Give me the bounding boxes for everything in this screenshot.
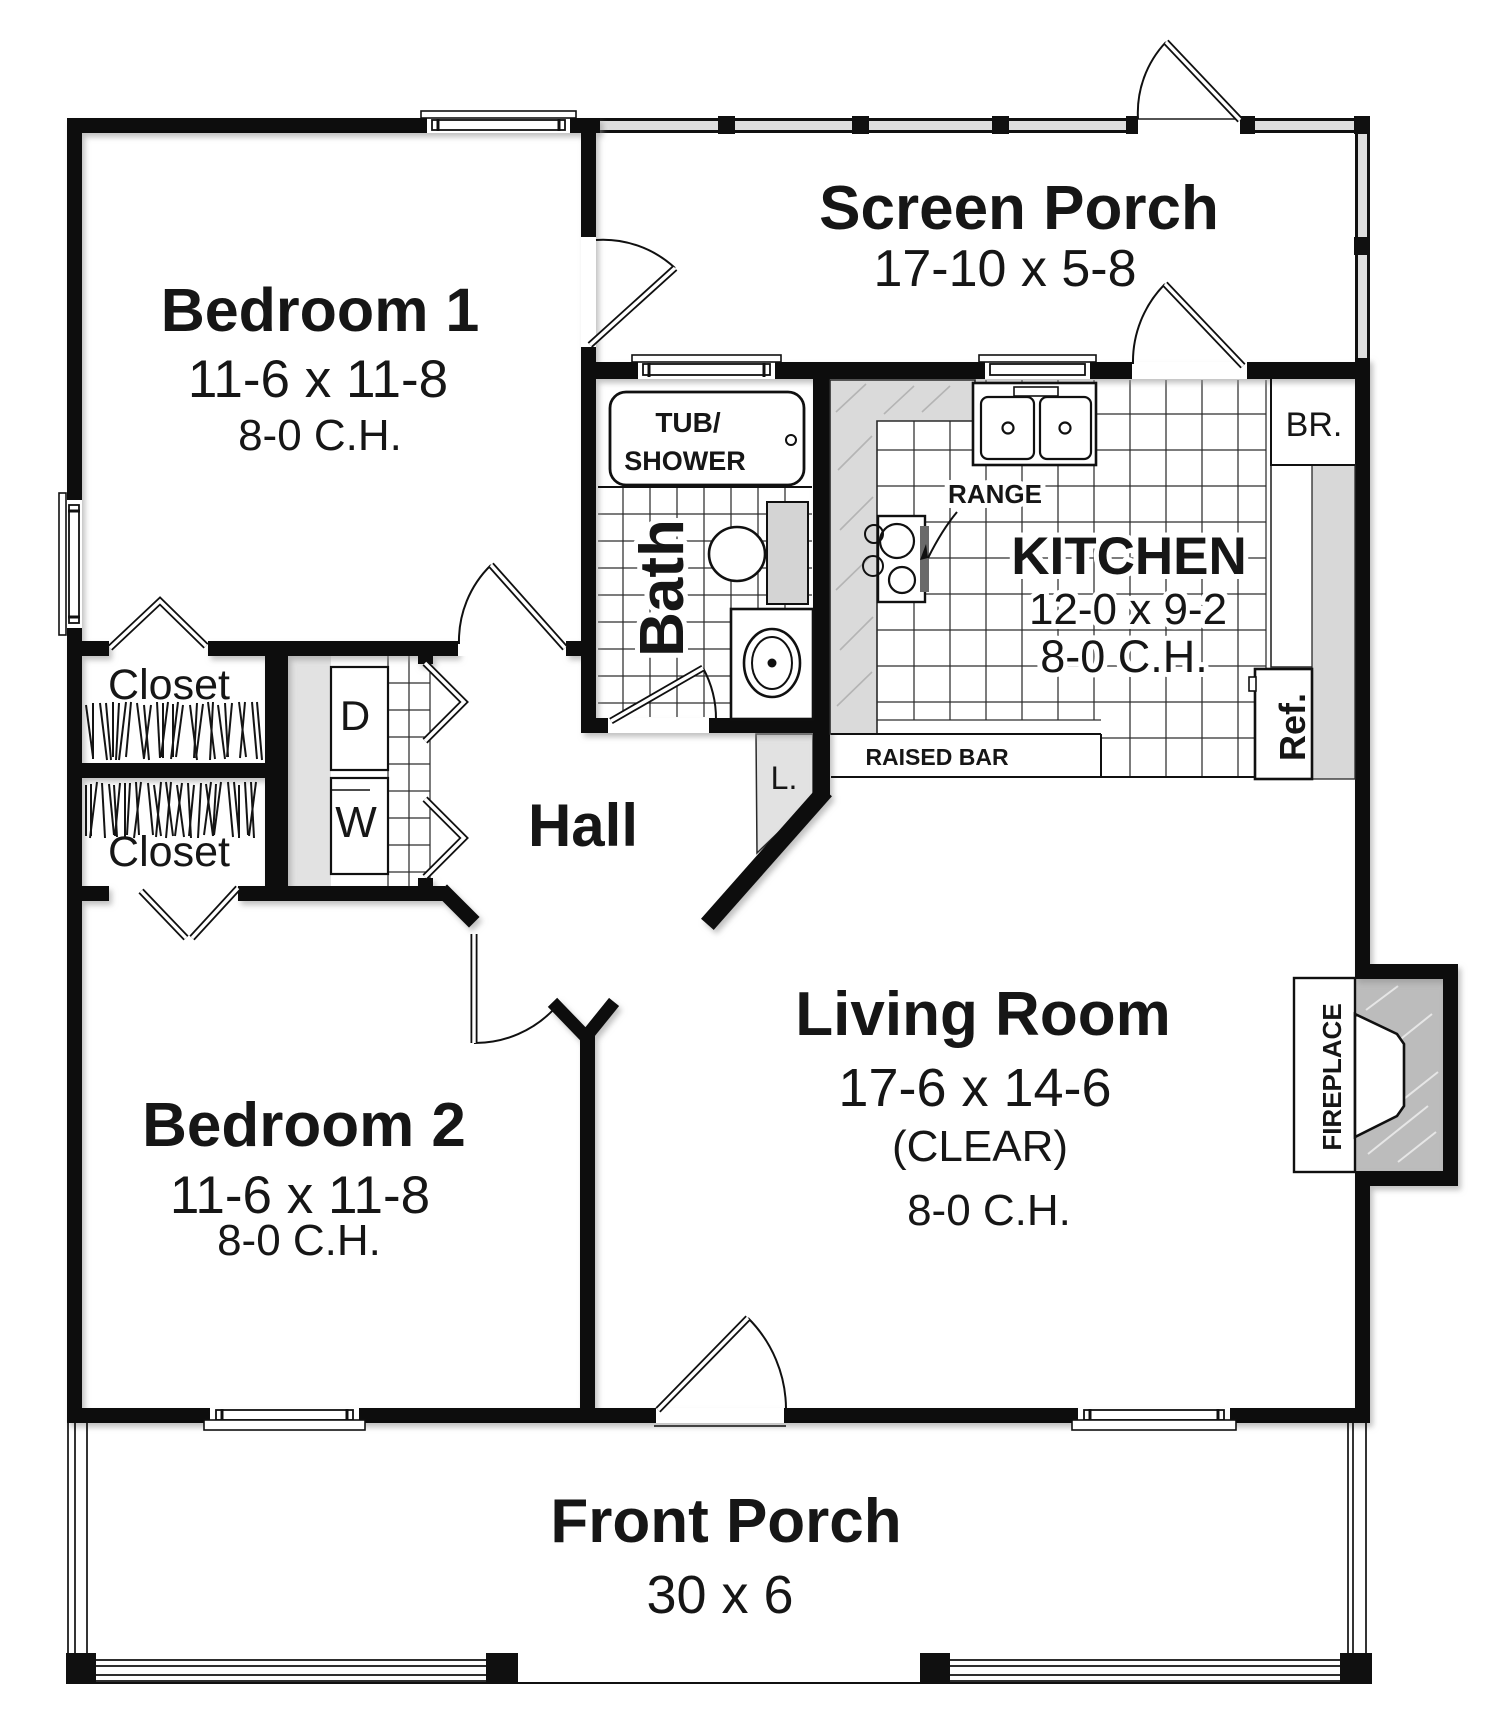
svg-text:8-0 C.H.: 8-0 C.H. [1040,631,1208,682]
svg-text:30 x 6: 30 x 6 [646,1565,793,1625]
svg-text:17-10 x 5-8: 17-10 x 5-8 [873,240,1136,298]
svg-text:BR.: BR. [1286,406,1343,444]
svg-text:Bedroom 2: Bedroom 2 [142,1091,466,1160]
svg-text:Bedroom 1: Bedroom 1 [161,276,480,344]
svg-text:8-0 C.H.: 8-0 C.H. [907,1186,1071,1235]
svg-text:Living Room: Living Room [795,980,1170,1049]
svg-text:17-6 x 14-6: 17-6 x 14-6 [838,1058,1111,1118]
svg-text:Bath: Bath [628,519,697,657]
svg-text:8-0 C.H.: 8-0 C.H. [217,1216,381,1265]
svg-text:Front Porch: Front Porch [550,1487,901,1556]
svg-text:Hall: Hall [528,792,638,859]
svg-text:12-0 x 9-2: 12-0 x 9-2 [1029,585,1227,634]
svg-text:8-0 C.H.: 8-0 C.H. [238,411,402,460]
svg-text:KITCHEN: KITCHEN [1011,527,1247,586]
svg-text:RANGE: RANGE [948,479,1042,509]
svg-text:L.: L. [771,760,798,796]
svg-text:D: D [340,692,370,739]
svg-text:Closet: Closet [108,828,230,876]
svg-text:Screen Porch: Screen Porch [819,174,1219,243]
svg-text:W: W [335,798,377,847]
svg-text:Ref.: Ref. [1272,693,1313,761]
svg-text:RAISED BAR: RAISED BAR [865,744,1009,770]
svg-text:11-6 x 11-8: 11-6 x 11-8 [188,350,448,409]
svg-text:TUB/: TUB/ [655,407,721,438]
svg-text:SHOWER: SHOWER [624,446,746,476]
svg-text:Closet: Closet [108,661,230,709]
svg-text:(CLEAR): (CLEAR) [892,1122,1068,1171]
svg-text:FIREPLACE: FIREPLACE [1317,1003,1347,1150]
